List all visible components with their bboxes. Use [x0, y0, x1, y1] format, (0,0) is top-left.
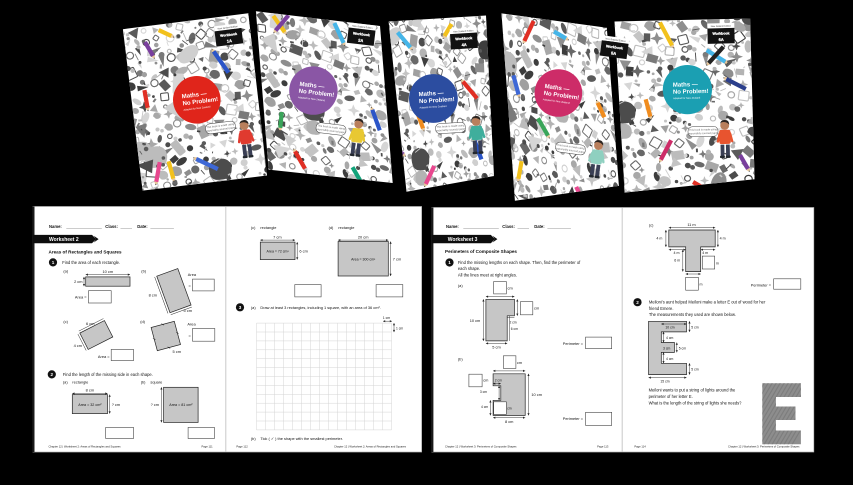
svg-text:Page 114: Page 114	[634, 445, 646, 449]
svg-text:15 cm: 15 cm	[660, 380, 669, 384]
svg-text:rectangle: rectangle	[72, 380, 88, 385]
svg-text:Perimeter =: Perimeter =	[563, 416, 584, 421]
svg-text:(b): (b)	[141, 269, 146, 274]
svg-text:Area: Area	[187, 322, 196, 327]
svg-text:5 cm: 5 cm	[691, 326, 699, 330]
svg-text:Area =: Area =	[98, 354, 110, 359]
svg-text:Name:: Name:	[446, 224, 459, 229]
svg-text:5 cm: 5 cm	[492, 345, 500, 350]
svg-text:6 m: 6 m	[674, 258, 680, 262]
svg-text:(a): (a)	[458, 283, 463, 288]
svg-text:New Zealand Edition: New Zealand Edition	[711, 25, 732, 28]
svg-text:What is the length of the stri: What is the length of the string of ligh…	[649, 400, 743, 405]
svg-text:Perimeter =: Perimeter =	[751, 283, 772, 288]
svg-text:Class:: Class:	[502, 224, 515, 229]
svg-text:8 cm: 8 cm	[86, 388, 94, 393]
svg-text:6A: 6A	[719, 37, 724, 42]
svg-text:friend Emere.: friend Emere.	[649, 306, 674, 311]
svg-text:All the lines meet at right an: All the lines meet at right angles.	[458, 272, 517, 277]
svg-text:1 cm: 1 cm	[396, 327, 403, 331]
svg-text:4 m: 4 m	[674, 251, 680, 255]
svg-text:4A: 4A	[461, 42, 467, 47]
svg-text:square: square	[150, 380, 162, 385]
svg-text:cm: cm	[517, 360, 522, 365]
svg-text:1 cm: 1 cm	[383, 316, 390, 320]
svg-text:3 cm: 3 cm	[663, 346, 671, 350]
svg-text:responsibly sourced paper: responsibly sourced paper	[688, 131, 719, 136]
svg-text:10 cm: 10 cm	[665, 326, 674, 330]
svg-text:Area = 300 cm²: Area = 300 cm²	[351, 257, 376, 261]
svg-text:2: 2	[51, 372, 54, 377]
svg-text:Chapter 12 | Worksheet 2: Area: Chapter 12 | Worksheet 2: Areas of Recta…	[49, 445, 122, 449]
svg-text:1: 1	[52, 260, 55, 265]
svg-text:2 cm: 2 cm	[495, 379, 502, 383]
svg-text:7 cm: 7 cm	[393, 256, 401, 261]
svg-text:Meiloni’s aunt helped Meiloni: Meiloni’s aunt helped Meiloni make a let…	[649, 300, 766, 305]
svg-text:10 cm: 10 cm	[102, 269, 113, 274]
svg-text:(a): (a)	[63, 380, 68, 385]
svg-text:Class:: Class:	[105, 224, 118, 229]
svg-text:Tick ( ✓ ) the shape with the: Tick ( ✓ ) the shape with the smallest p…	[260, 436, 342, 441]
svg-text:Find the length of the missing: Find the length of the missing side in e…	[63, 372, 153, 377]
svg-text:cm: cm	[534, 306, 539, 311]
svg-text:Areas of Rectangles and Square: Areas of Rectangles and Squares	[49, 249, 122, 254]
svg-text:Maths —: Maths —	[673, 82, 698, 89]
svg-text:cm: cm	[483, 378, 488, 383]
svg-text:2 cm: 2 cm	[510, 320, 517, 324]
svg-text:The measurements they used are: The measurements they used are shown bel…	[649, 312, 736, 317]
svg-text:11 m: 11 m	[687, 222, 695, 227]
svg-text:Area =: Area =	[75, 294, 87, 299]
svg-text:No Problem!: No Problem!	[673, 89, 709, 96]
svg-text:(a): (a)	[251, 305, 256, 310]
svg-text:2A: 2A	[358, 37, 364, 43]
svg-text:Page 112: Page 112	[236, 445, 248, 449]
svg-text:? cm: ? cm	[151, 402, 159, 407]
svg-text:4 m: 4 m	[702, 251, 708, 255]
svg-text:Date:: Date:	[137, 224, 147, 229]
svg-text:? cm: ? cm	[112, 402, 120, 407]
svg-text:(c): (c)	[251, 225, 256, 230]
svg-text:each shape.: each shape.	[458, 266, 480, 271]
svg-text:5 cm: 5 cm	[679, 346, 687, 350]
svg-text:Draw at least 3 rectangles, in: Draw at least 3 rectangles, including 1 …	[260, 305, 380, 310]
svg-text:8 cm: 8 cm	[149, 293, 157, 298]
svg-text:Worksheet 3: Worksheet 3	[448, 237, 478, 243]
svg-text:Page 113: Page 113	[597, 445, 609, 449]
svg-text:6 cm: 6 cm	[511, 327, 518, 331]
svg-text:5 cm: 5 cm	[691, 368, 699, 372]
svg-text:Area: Area	[188, 272, 197, 277]
svg-text:(b): (b)	[458, 356, 463, 361]
svg-text:5A: 5A	[611, 50, 617, 56]
svg-text:(b): (b)	[141, 380, 146, 385]
svg-text:10 cm: 10 cm	[470, 318, 481, 323]
svg-text:Chapter 12 | Worksheet 3: Peri: Chapter 12 | Worksheet 3: Perimeters of …	[728, 445, 800, 449]
svg-text:20 cm: 20 cm	[358, 235, 369, 240]
svg-text:Area = 81 cm²: Area = 81 cm²	[169, 403, 193, 407]
svg-text:4 m: 4 m	[720, 237, 726, 241]
svg-text:Chapter 12 | Worksheet 3: Peri: Chapter 12 | Worksheet 3: Perimeters of …	[445, 445, 517, 449]
svg-text:3 cm: 3 cm	[480, 390, 487, 394]
svg-text:Area = 72 cm²: Area = 72 cm²	[267, 250, 290, 254]
svg-text:Meiloni wants to put a string: Meiloni wants to put a string of lights …	[649, 387, 736, 392]
svg-text:Worksheet 2: Worksheet 2	[49, 237, 79, 243]
svg-text:10 cm: 10 cm	[531, 392, 542, 397]
svg-text:Find the missing lengths on ea: Find the missing lengths on each shape. …	[458, 260, 581, 265]
svg-text:(c): (c)	[63, 319, 68, 324]
svg-text:Perimeters of Composite Shapes: Perimeters of Composite Shapes	[445, 249, 517, 254]
svg-text:8 cm: 8 cm	[505, 419, 513, 424]
svg-text:7 cm: 7 cm	[273, 235, 281, 240]
svg-text:rectangle: rectangle	[260, 225, 276, 230]
svg-text:Find the area of each rectangl: Find the area of each rectangle.	[62, 260, 120, 265]
svg-text:6 cm: 6 cm	[86, 321, 94, 326]
svg-text:rectangle: rectangle	[338, 225, 354, 230]
svg-text:4 cm: 4 cm	[74, 343, 82, 348]
svg-text:2: 2	[636, 300, 639, 305]
svg-text:4 cm: 4 cm	[666, 336, 674, 340]
svg-text:Chapter 12 | Worksheet 2: Area: Chapter 12 | Worksheet 2: Areas of Recta…	[334, 445, 407, 449]
svg-text:1: 1	[448, 260, 451, 265]
svg-text:Area = 32 cm²: Area = 32 cm²	[78, 403, 102, 407]
svg-text:(b): (b)	[251, 436, 256, 441]
svg-text:cm: cm	[507, 406, 512, 410]
svg-text:5 cm: 5 cm	[173, 349, 181, 354]
svg-text:Date:: Date:	[534, 224, 544, 229]
svg-text:3: 3	[239, 305, 242, 310]
svg-text:m: m	[700, 282, 703, 286]
svg-text:Workbook: Workbook	[712, 31, 729, 35]
svg-text:4 cm: 4 cm	[481, 405, 488, 409]
svg-text:(c): (c)	[649, 222, 654, 227]
svg-text:5 cm: 5 cm	[184, 308, 192, 313]
svg-text:6 cm: 6 cm	[299, 249, 307, 254]
svg-text:(a): (a)	[63, 269, 68, 274]
svg-text:2 cm: 2 cm	[74, 279, 82, 284]
svg-text:Perimeter =: Perimeter =	[563, 341, 584, 346]
svg-text:4 cm: 4 cm	[666, 357, 674, 361]
svg-text:perimeter of her letter E.: perimeter of her letter E.	[649, 394, 693, 399]
svg-text:cm: cm	[508, 286, 513, 291]
svg-text:m: m	[716, 261, 719, 265]
svg-text:Page 111: Page 111	[201, 445, 213, 449]
svg-text:4 m: 4 m	[656, 237, 662, 241]
svg-text:Adapted for New Zealand: Adapted for New Zealand	[673, 96, 701, 100]
svg-text:1A: 1A	[227, 38, 233, 44]
svg-text:Name:: Name:	[49, 224, 62, 229]
svg-text:(d): (d)	[140, 319, 145, 324]
svg-text:(d): (d)	[329, 225, 334, 230]
